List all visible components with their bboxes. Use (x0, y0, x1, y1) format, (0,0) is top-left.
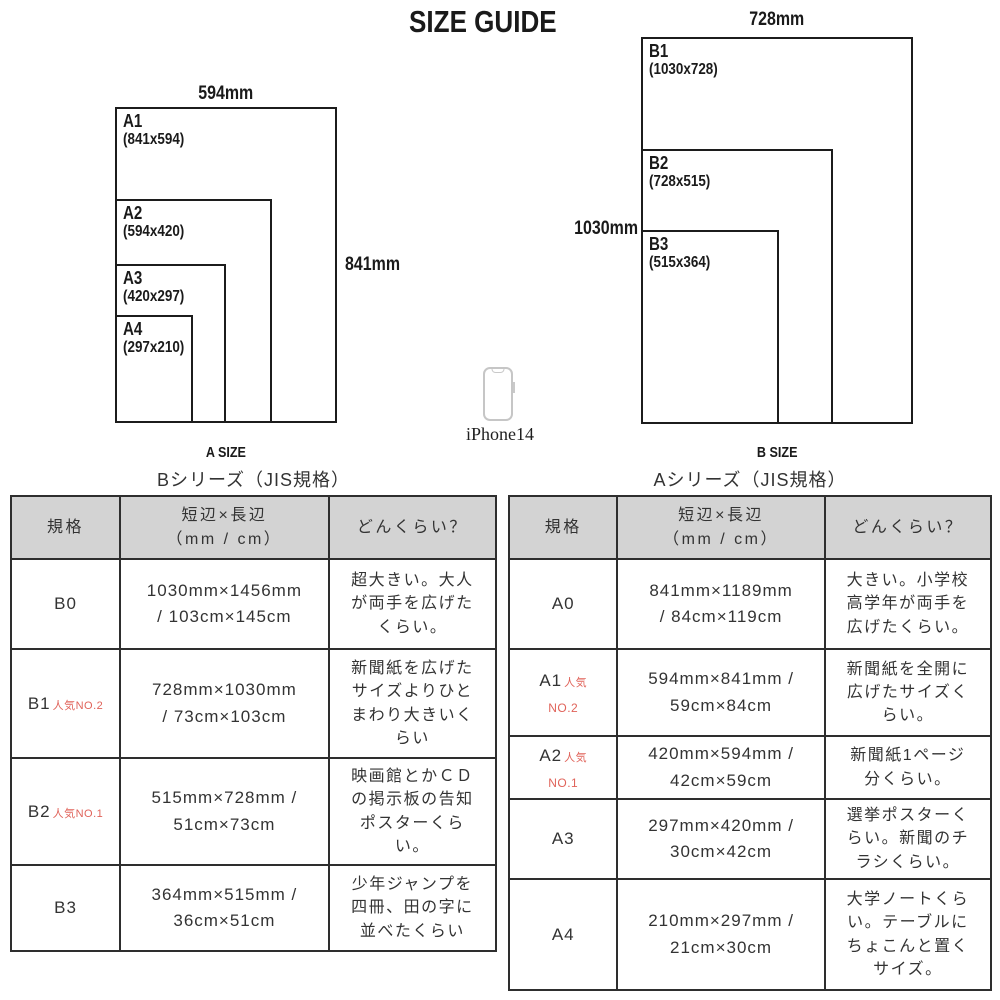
a-series-table-title: Aシリーズ（JIS規格） (508, 466, 992, 495)
header-row: 規格短辺×長辺 （mm / cm）どんくらい？ (509, 496, 991, 559)
a-side-dimension-label: 841mm (345, 254, 411, 276)
dimensions-cell: 364mm×515mm / 36cm×51cm (120, 865, 329, 951)
popularity-tag-line2: NO.1 (512, 776, 614, 790)
size-name: B1 (28, 694, 51, 714)
b2-label: B2 (728x515) (649, 154, 722, 191)
table-row: A3297mm×420mm / 30cm×42cm選挙ポスターく らい。新聞のチ… (509, 799, 991, 879)
description-cell: 新聞紙を全開に 広げたサイズく らい。 (825, 649, 991, 736)
table-row: A4210mm×297mm / 21cm×30cm大学ノートくら い。テーブルに… (509, 879, 991, 990)
iphone-notch (492, 369, 505, 373)
description-cell: 超大きい。大人 が両手を広げた くらい。 (329, 559, 496, 649)
table-row: B3364mm×515mm / 36cm×51cm少年ジャンプを 四冊、田の字に… (11, 865, 496, 951)
popularity-tag: 人気 (564, 749, 587, 765)
iphone-side-button (513, 382, 515, 393)
a3-label: A3 (420x297) (123, 269, 196, 306)
description-cell: 新聞紙1ページ 分くらい。 (825, 736, 991, 799)
a1-label: A1 (841x594) (123, 112, 196, 149)
column-header: 短辺×長辺 （mm / cm） (120, 496, 329, 559)
size-cell: A3 (509, 799, 617, 879)
size-name: A0 (552, 594, 575, 614)
size-name: A1 (539, 671, 562, 691)
size-name: A2 (539, 746, 562, 766)
size-cell: B0 (11, 559, 120, 649)
dimensions-cell: 1030mm×1456mm / 103cm×145cm (120, 559, 329, 649)
size-cell: A1人気NO.2 (509, 649, 617, 736)
a4-rect: A4 (297x210) (115, 315, 193, 423)
description-cell: 新聞紙を広げた サイズよりひと まわり大きいく らい (329, 649, 496, 758)
a-size-caption: A SIZE (115, 444, 337, 461)
description-cell: 大学ノートくら い。テーブルに ちょこんと置く サイズ。 (825, 879, 991, 990)
popularity-tag: 人気NO.1 (53, 805, 104, 821)
dimensions-cell: 728mm×1030mm / 73cm×103cm (120, 649, 329, 758)
size-guide-page: SIZE GUIDE 594mm A1 (841x594) A2 (594x42… (0, 0, 1000, 1000)
a2-label: A2 (594x420) (123, 204, 196, 241)
table-row: B1人気NO.2728mm×1030mm / 73cm×103cm新聞紙を広げた… (11, 649, 496, 758)
a-series-table-block: Aシリーズ（JIS規格） 規格短辺×長辺 （mm / cm）どんくらい？A084… (508, 466, 992, 991)
description-cell: 大きい。小学校 高学年が両手を 広げたくらい。 (825, 559, 991, 649)
popularity-tag: 人気NO.2 (53, 697, 104, 713)
size-name: B3 (54, 898, 77, 918)
size-name: A3 (552, 829, 575, 849)
table-row: A2人気NO.1420mm×594mm / 42cm×59cm新聞紙1ページ 分… (509, 736, 991, 799)
page-title-text: SIZE GUIDE (409, 4, 557, 40)
dimensions-cell: 515mm×728mm / 51cm×73cm (120, 758, 329, 865)
description-cell: 少年ジャンプを 四冊、田の字に 並べたくらい (329, 865, 496, 951)
column-header: どんくらい？ (329, 496, 496, 559)
column-header: どんくらい？ (825, 496, 991, 559)
header-row: 規格短辺×長辺 （mm / cm）どんくらい？ (11, 496, 496, 559)
column-header: 規格 (509, 496, 617, 559)
a-series-table: 規格短辺×長辺 （mm / cm）どんくらい？A0841mm×1189mm / … (508, 495, 992, 991)
page-title: SIZE GUIDE (383, 4, 583, 40)
size-cell: A2人気NO.1 (509, 736, 617, 799)
table-row: B01030mm×1456mm / 103cm×145cm超大きい。大人 が両手… (11, 559, 496, 649)
column-header: 規格 (11, 496, 120, 559)
size-cell: B2人気NO.1 (11, 758, 120, 865)
size-name: A4 (552, 925, 575, 945)
size-cell: A4 (509, 879, 617, 990)
b1-label: B1 (1030x728) (649, 42, 731, 79)
b3-label: B3 (515x364) (649, 235, 722, 272)
a4-label: A4 (297x210) (123, 320, 196, 357)
table-row: A0841mm×1189mm / 84cm×119cm大きい。小学校 高学年が両… (509, 559, 991, 649)
table-row: B2人気NO.1515mm×728mm / 51cm×73cm映画館とかＣＤ の… (11, 758, 496, 865)
b-series-table-block: Bシリーズ（JIS規格） 規格短辺×長辺 （mm / cm）どんくらい？B010… (10, 466, 497, 952)
size-cell: B3 (11, 865, 120, 951)
table-row: A1人気NO.2594mm×841mm / 59cm×84cm新聞紙を全開に 広… (509, 649, 991, 736)
b-side-dimension-label: 1030mm (555, 218, 638, 240)
dimensions-cell: 841mm×1189mm / 84cm×119cm (617, 559, 824, 649)
b-size-caption: B SIZE (641, 444, 913, 461)
dimensions-cell: 210mm×297mm / 21cm×30cm (617, 879, 824, 990)
column-header: 短辺×長辺 （mm / cm） (617, 496, 824, 559)
b-series-table-title: Bシリーズ（JIS規格） (10, 466, 497, 495)
size-name: B0 (54, 594, 77, 614)
dimensions-cell: 594mm×841mm / 59cm×84cm (617, 649, 824, 736)
description-cell: 映画館とかＣＤ の掲示板の告知 ポスターくら い。 (329, 758, 496, 865)
size-name: B2 (28, 802, 51, 822)
dimensions-cell: 297mm×420mm / 30cm×42cm (617, 799, 824, 879)
b-series-table: 規格短辺×長辺 （mm / cm）どんくらい？B01030mm×1456mm /… (10, 495, 497, 952)
a-top-dimension-label: 594mm (115, 83, 337, 105)
size-cell: B1人気NO.2 (11, 649, 120, 758)
b3-rect: B3 (515x364) (641, 230, 779, 424)
size-cell: A0 (509, 559, 617, 649)
description-cell: 選挙ポスターく らい。新聞のチ ラシくらい。 (825, 799, 991, 879)
dimensions-cell: 420mm×594mm / 42cm×59cm (617, 736, 824, 799)
popularity-tag-line2: NO.2 (512, 701, 614, 715)
iphone-label: iPhone14 (440, 424, 560, 445)
popularity-tag: 人気 (564, 674, 587, 690)
iphone-icon (483, 367, 513, 421)
b-top-dimension-label: 728mm (641, 9, 913, 31)
